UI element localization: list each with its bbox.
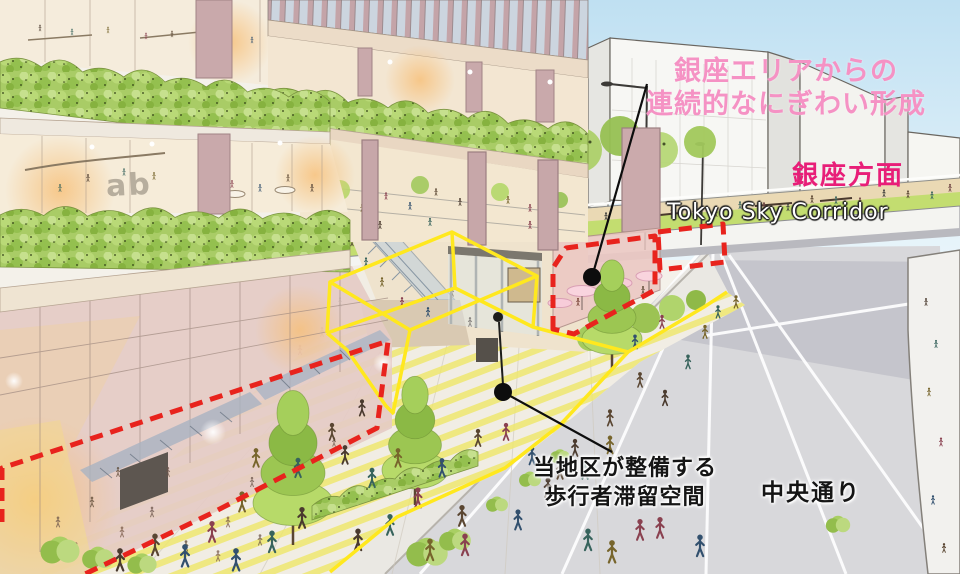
- label-ginza-direction: 銀座方面: [792, 155, 904, 192]
- label-chuo-dori: 中央通り: [761, 473, 861, 507]
- annotation-ginza-continuity: 銀座エリアからの 連続的なにぎわい形成: [616, 56, 956, 122]
- annotation-dot: [583, 268, 601, 286]
- annotation-line2: 連続的なにぎわい形成: [616, 89, 956, 122]
- annotation-dot: [494, 383, 512, 401]
- note-line1: 当地区が整備する: [502, 455, 748, 484]
- building-sign-ab: ab: [105, 167, 152, 204]
- rendering-canvas: 銀座エリアからの 連続的なにぎわい形成 銀座方面 Tokyo Sky Corri…: [0, 0, 960, 574]
- label-pedestrian-space: 当地区が整備する 歩行者滞留空間: [502, 455, 748, 512]
- label-tokyo-sky-corridor: Tokyo Sky Corridor: [667, 200, 889, 225]
- annotation-line1: 銀座エリアからの: [616, 56, 956, 89]
- building-column: [622, 128, 660, 232]
- note-line2: 歩行者滞留空間: [502, 484, 748, 513]
